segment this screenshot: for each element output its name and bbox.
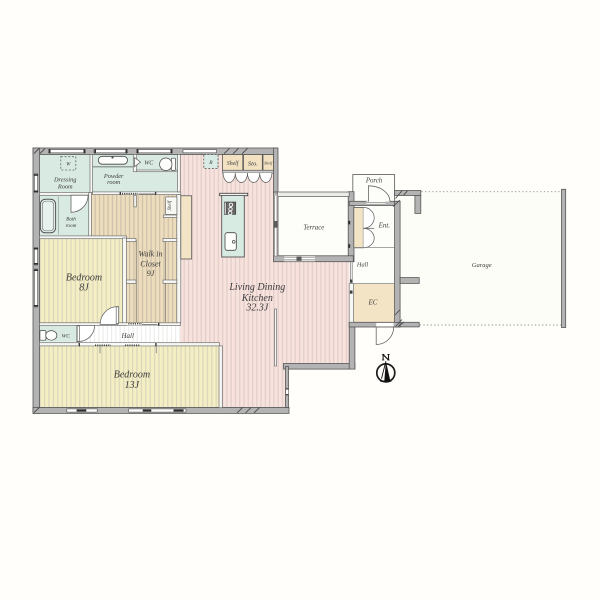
- svg-text:Terrace: Terrace: [303, 224, 324, 231]
- svg-text:9J: 9J: [147, 269, 155, 278]
- svg-text:Room: Room: [57, 184, 73, 191]
- svg-text:32.3J: 32.3J: [245, 302, 269, 313]
- svg-text:room: room: [107, 179, 121, 186]
- svg-text:8J: 8J: [79, 282, 89, 293]
- svg-text:Shelf: Shelf: [264, 161, 273, 166]
- svg-text:R: R: [208, 160, 213, 166]
- svg-text:Shelf: Shelf: [168, 200, 173, 210]
- svg-text:Bath: Bath: [66, 217, 76, 223]
- svg-text:Garage: Garage: [472, 262, 492, 269]
- svg-text:Dressing: Dressing: [53, 177, 77, 184]
- svg-text:Hall: Hall: [120, 332, 134, 340]
- svg-text:room: room: [66, 223, 77, 229]
- svg-text:Shelf: Shelf: [227, 160, 240, 167]
- svg-text:Hall: Hall: [356, 262, 368, 269]
- svg-text:Closet: Closet: [140, 260, 161, 269]
- svg-text:EC: EC: [368, 299, 378, 307]
- svg-text:WC: WC: [144, 160, 154, 166]
- svg-text:Ent.: Ent.: [378, 222, 391, 230]
- svg-text:Bedroom: Bedroom: [114, 370, 150, 381]
- svg-text:Living Dining: Living Dining: [228, 282, 285, 293]
- svg-text:WC: WC: [62, 334, 71, 340]
- svg-text:Sto.: Sto.: [248, 160, 258, 167]
- svg-text:Walk in: Walk in: [139, 249, 163, 258]
- svg-text:Porch: Porch: [365, 178, 383, 185]
- svg-text:13J: 13J: [125, 380, 140, 391]
